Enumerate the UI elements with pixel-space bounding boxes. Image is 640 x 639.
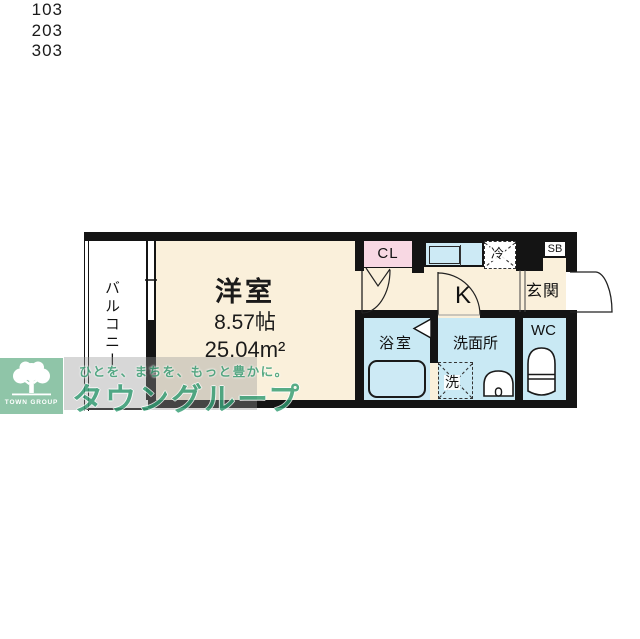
- closet-label: CL: [364, 245, 412, 262]
- main-room-name: 洋室: [170, 276, 320, 309]
- shoebox: SB: [543, 240, 567, 258]
- kitchen-sink: [429, 246, 460, 264]
- window: [146, 241, 156, 321]
- wall-closet-right: [412, 241, 424, 273]
- watermark-brand: タウングループ: [72, 374, 301, 419]
- unit-number: 303: [0, 41, 63, 62]
- wall-fridge-shoebox: [516, 241, 543, 271]
- shoebox-label: SB: [548, 243, 563, 255]
- entrance-label: 玄関: [519, 277, 567, 301]
- wall-washroom-wc: [515, 318, 523, 400]
- entrance-door-arc: [570, 272, 612, 312]
- floorplan-page: 103 203 303 SB: [0, 0, 640, 639]
- logo-text: TOWN GROUP: [5, 399, 58, 406]
- unit-number: 203: [0, 21, 63, 42]
- tree-icon: [0, 358, 63, 400]
- company-logo: TOWN GROUP: [0, 358, 63, 414]
- main-room-label-block: 洋室 8.57帖 25.04m²: [170, 276, 320, 363]
- unit-number-list: 103 203 303: [0, 0, 63, 62]
- wall-horizontal-left: [355, 310, 438, 318]
- bath-label: 浴室: [364, 332, 428, 353]
- washer-label: 洗: [444, 375, 460, 390]
- wc-label: WC: [523, 322, 564, 339]
- main-room-size-tatami: 8.57帖: [170, 309, 320, 336]
- wall-right-upper: [566, 241, 577, 272]
- wall-closet-left: [355, 241, 364, 271]
- counter-divider-line: [460, 245, 461, 266]
- wall-horizontal-right: [480, 310, 577, 318]
- kitchen-label: K: [455, 282, 471, 310]
- wall-top: [84, 232, 577, 241]
- washroom-label: 洗面所: [436, 332, 515, 353]
- wall-right-lower: [566, 312, 577, 408]
- kitchen-counter: [424, 241, 484, 267]
- wall-room-divider: [355, 312, 364, 400]
- bathtub: [368, 360, 426, 398]
- unit-number: 103: [0, 0, 63, 21]
- fridge-label: 冷: [490, 247, 505, 261]
